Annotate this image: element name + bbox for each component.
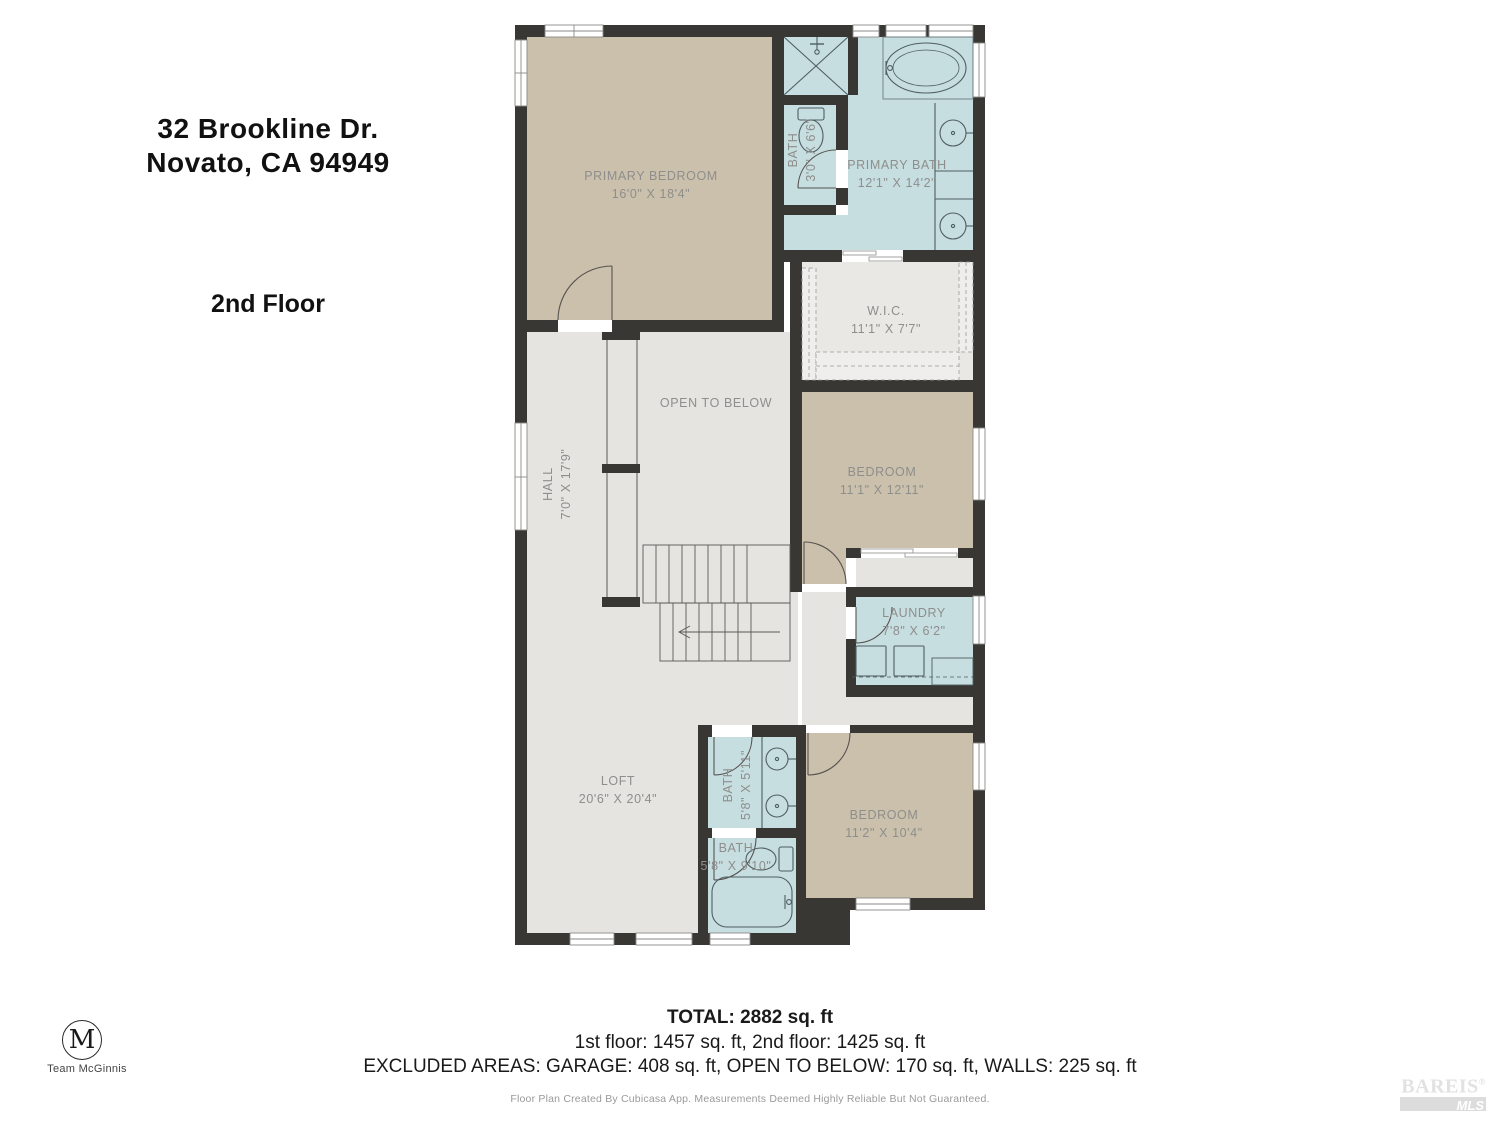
room-name: BATH — [719, 750, 737, 820]
team-logo-icon: M — [62, 1020, 102, 1060]
mls-watermark: BAREIS® MLS — [1386, 1073, 1486, 1111]
label-open-to-below: OPEN TO BELOW — [660, 394, 772, 412]
label-loft: LOFT 20'6" X 20'4" — [579, 772, 657, 808]
watermark-bar: MLS — [1400, 1097, 1486, 1111]
room-name: HALL — [539, 449, 557, 520]
label-bath-lower: BATH 5'8" X 9'10" — [701, 839, 772, 875]
room-name: BATH — [701, 839, 772, 857]
window — [973, 743, 985, 790]
room-dims: 11'2" X 10'4" — [845, 824, 923, 842]
corridor-floor-v — [802, 592, 850, 733]
room-dims: 3'0" X 6'6" — [802, 118, 820, 181]
label-primary-bedroom: PRIMARY BEDROOM 16'0" X 18'4" — [584, 167, 718, 203]
total-area: TOTAL: 2882 sq. ft — [0, 1007, 1500, 1029]
room-dims: 20'6" X 20'4" — [579, 790, 657, 808]
watermark-bareis: BAREIS® — [1386, 1073, 1486, 1096]
label-primary-bath: PRIMARY BATH 12'1" X 14'2" — [847, 156, 947, 192]
window — [973, 43, 985, 97]
address-line2: Novato, CA 94949 — [118, 146, 418, 180]
window — [886, 25, 926, 37]
room-name: PRIMARY BATH — [847, 156, 947, 174]
room-dims: 5'8" X 5'11" — [737, 750, 755, 820]
window — [515, 40, 527, 106]
label-bedroom-1: BEDROOM 11'1" X 12'11" — [840, 463, 924, 499]
label-bath-small: BATH 3'0" X 6'6" — [784, 118, 820, 181]
window — [636, 933, 692, 945]
logo-letter: M — [69, 1025, 96, 1055]
room-name: PRIMARY BEDROOM — [584, 167, 718, 185]
window — [856, 898, 910, 910]
watermark-mls: MLS — [1457, 1098, 1486, 1113]
window — [973, 596, 985, 644]
label-bedroom-2: BEDROOM 11'2" X 10'4" — [845, 806, 923, 842]
window — [973, 428, 985, 500]
floor-plan-page: 32 Brookline Dr. Novato, CA 94949 2nd Fl… — [0, 0, 1500, 1125]
window — [929, 25, 973, 37]
window — [570, 933, 614, 945]
room-dims: 7'8" X 6'2" — [882, 622, 946, 640]
room-name: BEDROOM — [845, 806, 923, 824]
room-dims: 11'1" X 12'11" — [840, 481, 924, 499]
address-line1: 32 Brookline Dr. — [118, 112, 418, 146]
label-laundry: LAUNDRY 7'8" X 6'2" — [882, 604, 946, 640]
room-name: LOFT — [579, 772, 657, 790]
window — [515, 423, 527, 530]
label-hall: HALL 7'0" X 17'9" — [539, 449, 575, 520]
room-dims: 7'0" X 17'9" — [557, 449, 575, 520]
area-summary: TOTAL: 2882 sq. ft 1st floor: 1457 sq. f… — [0, 1007, 1500, 1105]
team-name: Team McGinnis — [32, 1063, 142, 1075]
label-bath-upper: BATH 5'8" X 5'11" — [719, 750, 755, 820]
room-name: W.I.C. — [851, 302, 921, 320]
floor-title: 2nd Floor — [118, 290, 418, 319]
closet-nook-floor — [856, 558, 973, 587]
registered-mark-icon: ® — [1479, 1077, 1486, 1087]
disclaimer: Floor Plan Created By Cubicasa App. Meas… — [0, 1093, 1500, 1105]
room-name: OPEN TO BELOW — [660, 394, 772, 412]
room-name: BEDROOM — [840, 463, 924, 481]
property-address: 32 Brookline Dr. Novato, CA 94949 — [118, 112, 418, 180]
room-dims: 16'0" X 18'4" — [584, 185, 718, 203]
window — [710, 933, 750, 945]
room-dims: 5'8" X 9'10" — [701, 857, 772, 875]
window — [853, 25, 879, 37]
room-name: LAUNDRY — [882, 604, 946, 622]
label-wic: W.I.C. 11'1" X 7'7" — [851, 302, 921, 338]
excluded-areas: EXCLUDED AREAS: GARAGE: 408 sq. ft, OPEN… — [0, 1056, 1500, 1078]
room-dims: 12'1" X 14'2" — [847, 174, 947, 192]
room-name: BATH — [784, 118, 802, 181]
corridor-floor-h — [850, 697, 973, 725]
room-dims: 11'1" X 7'7" — [851, 320, 921, 338]
floor-areas: 1st floor: 1457 sq. ft, 2nd floor: 1425 … — [0, 1032, 1500, 1054]
window — [545, 25, 603, 37]
watermark-text: BAREIS — [1401, 1076, 1478, 1098]
